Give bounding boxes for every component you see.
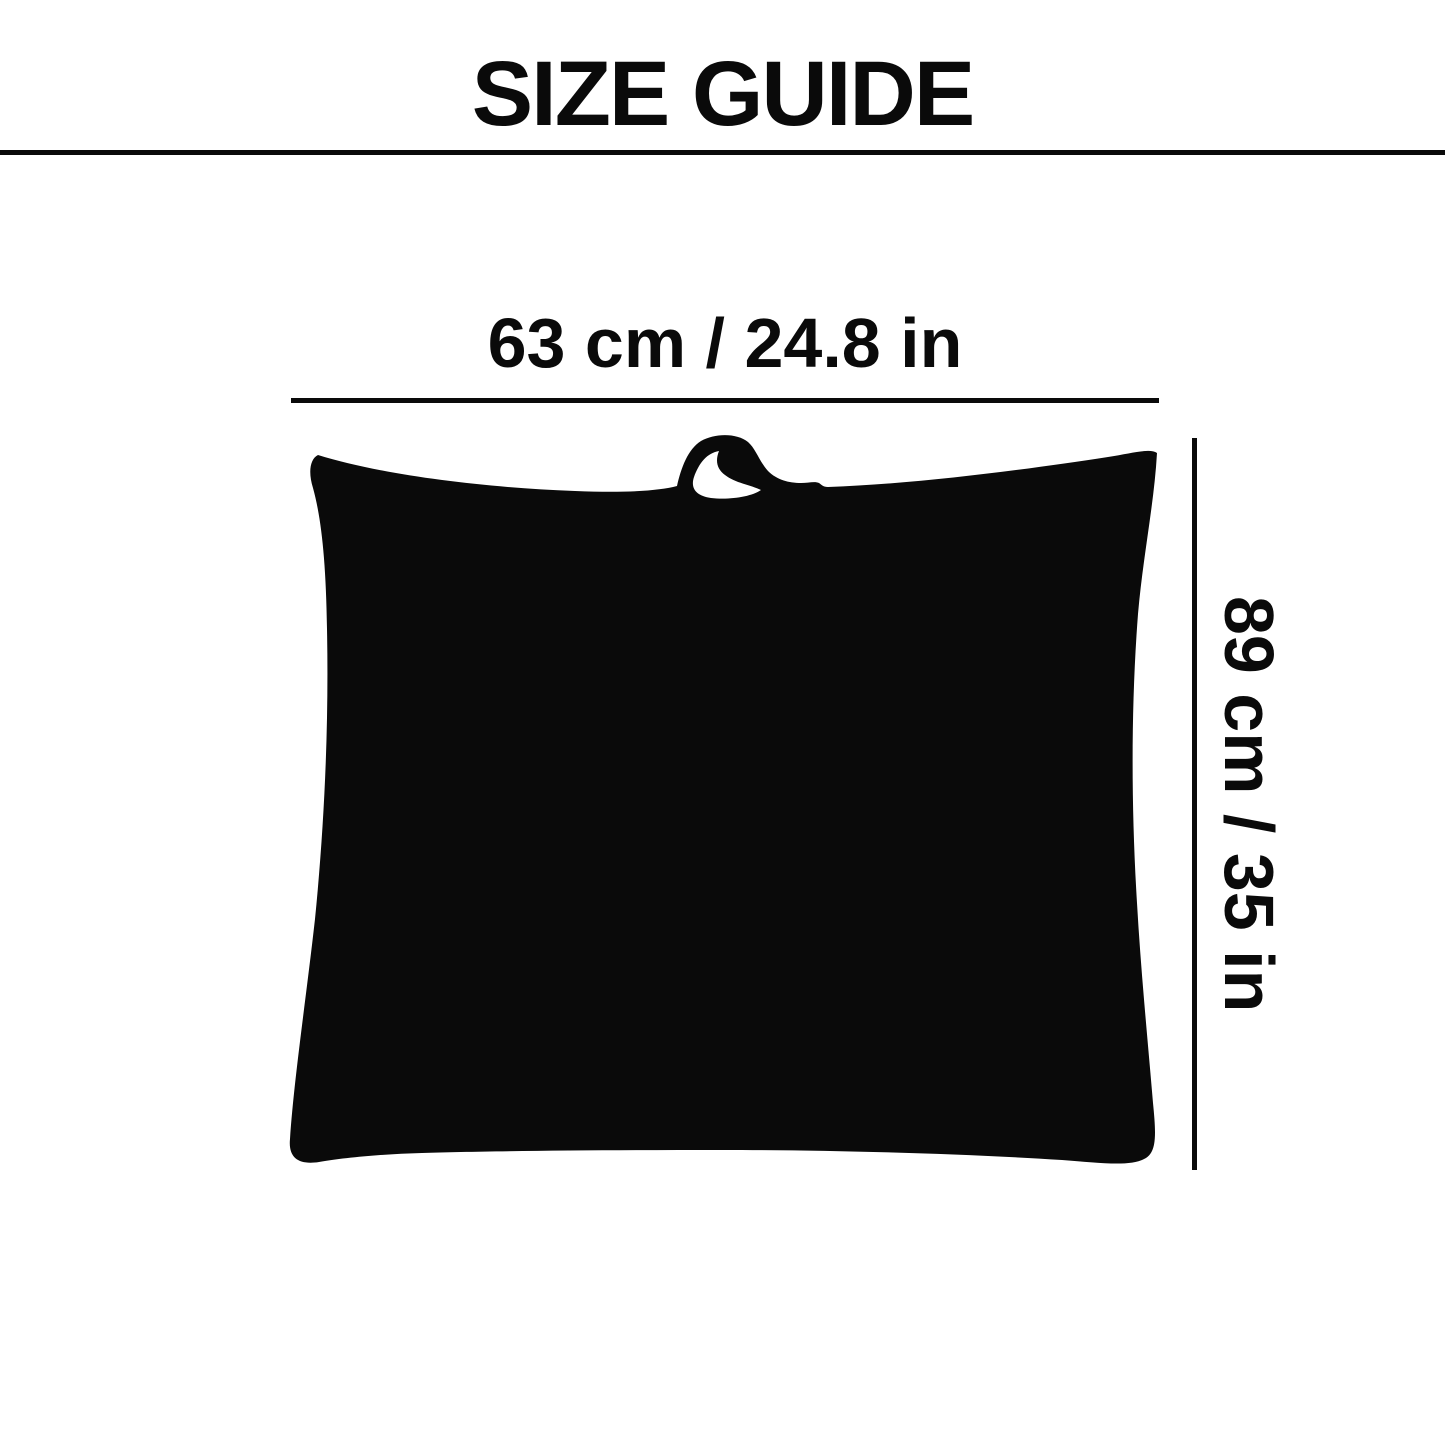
size-guide-page: SIZE GUIDE 63 cm / 24.8 in 89 cm / 35 in	[0, 0, 1445, 1445]
height-dimension-line	[1192, 438, 1197, 1170]
width-dimension-line	[291, 398, 1159, 403]
height-dimension-label: 89 cm / 35 in	[1206, 438, 1292, 1170]
width-dimension-label: 63 cm / 24.8 in	[280, 308, 1170, 378]
page-title: SIZE GUIDE	[0, 48, 1445, 140]
title-divider	[0, 150, 1445, 155]
